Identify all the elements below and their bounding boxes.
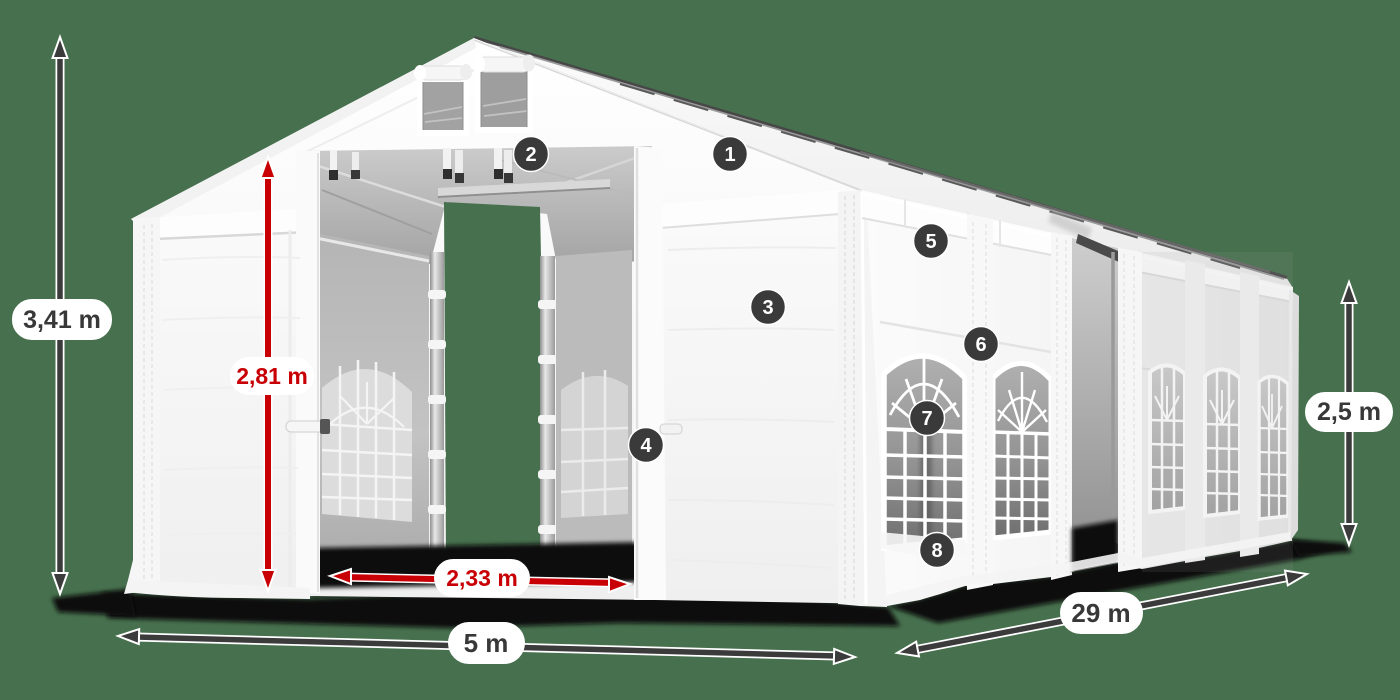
svg-text:5 m: 5 m bbox=[464, 628, 509, 658]
svg-text:3,41 m: 3,41 m bbox=[23, 306, 101, 334]
svg-text:29 m: 29 m bbox=[1071, 598, 1130, 628]
svg-text:8: 8 bbox=[931, 540, 942, 562]
svg-text:2: 2 bbox=[525, 144, 536, 166]
svg-text:3: 3 bbox=[762, 297, 773, 319]
svg-text:2,81 m: 2,81 m bbox=[236, 363, 308, 389]
svg-text:2,5 m: 2,5 m bbox=[1317, 398, 1381, 426]
svg-text:4: 4 bbox=[640, 435, 652, 457]
svg-text:5: 5 bbox=[925, 231, 936, 253]
svg-text:7: 7 bbox=[921, 408, 932, 430]
svg-text:2,33 m: 2,33 m bbox=[446, 565, 518, 591]
svg-text:1: 1 bbox=[724, 144, 735, 166]
svg-text:6: 6 bbox=[975, 334, 986, 356]
